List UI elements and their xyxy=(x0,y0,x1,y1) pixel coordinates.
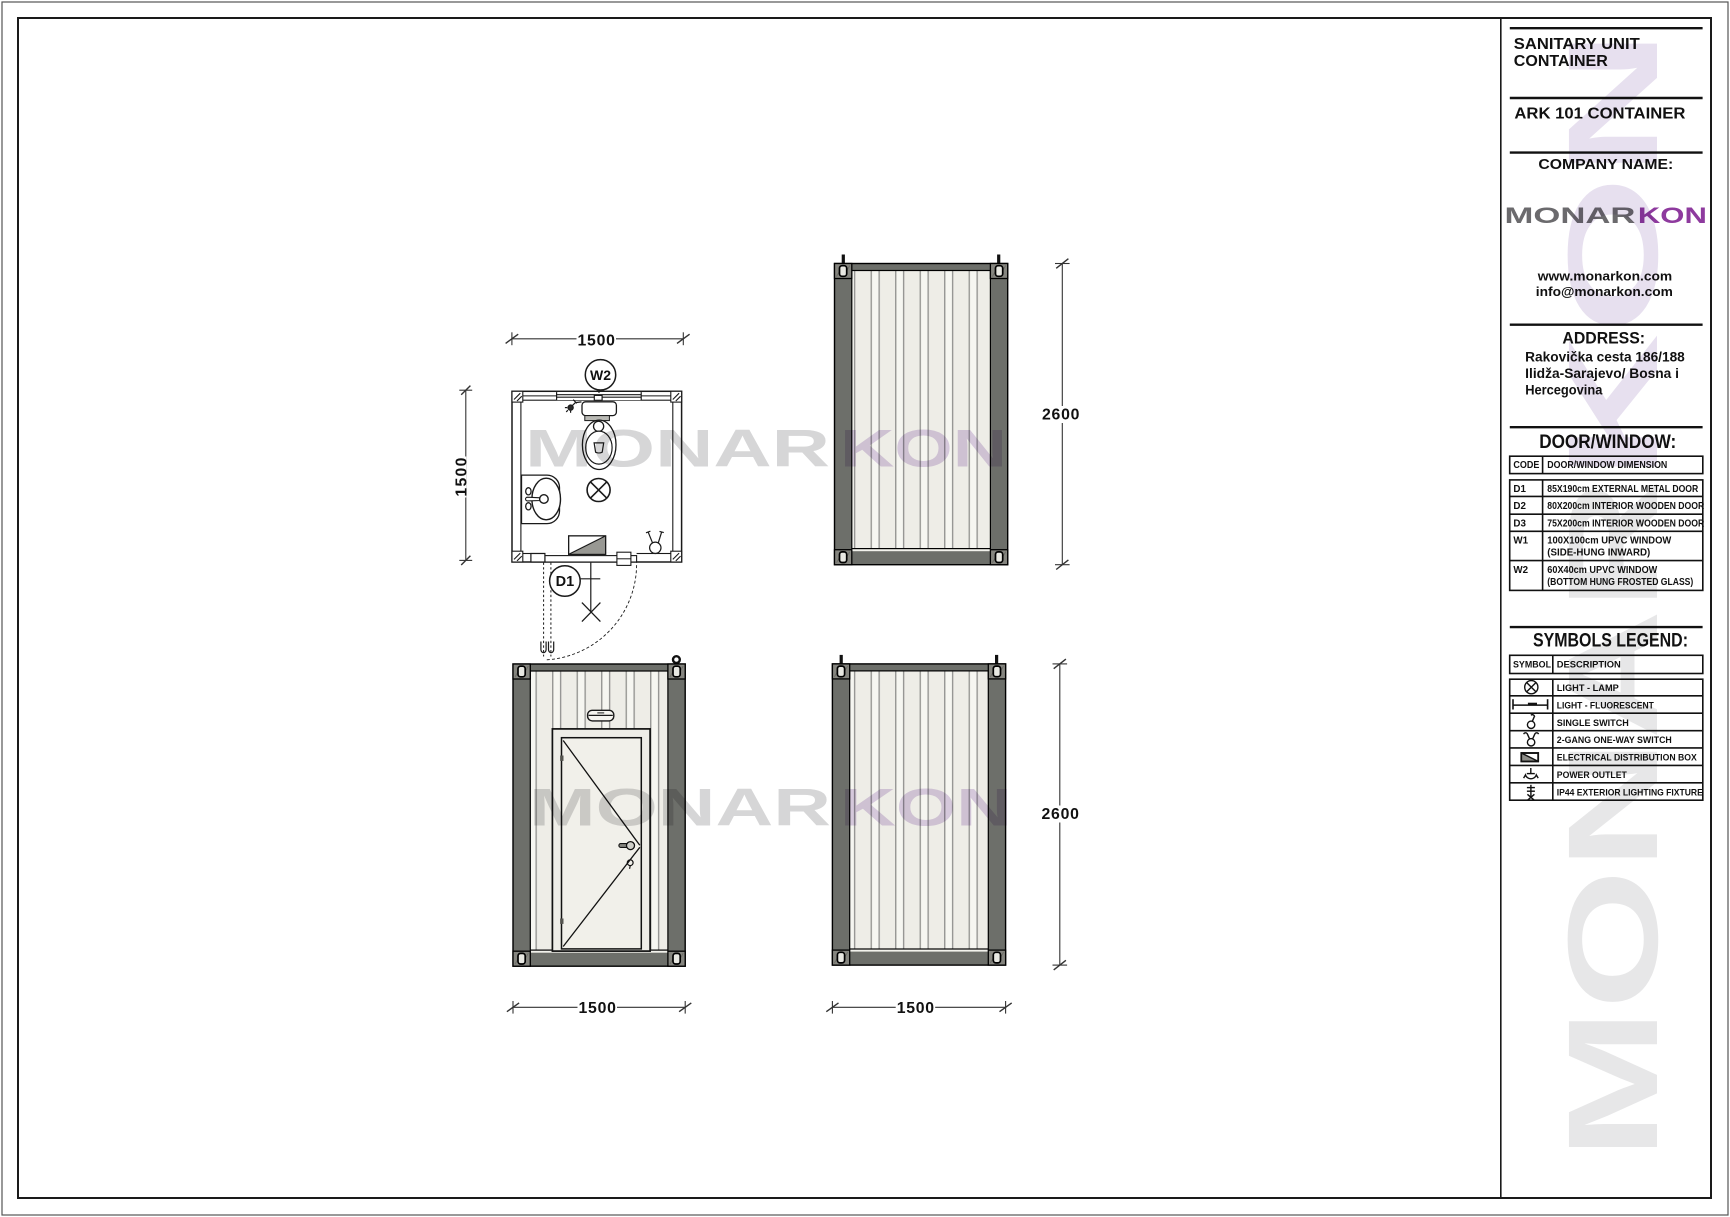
svg-text:KON: KON xyxy=(840,420,1007,479)
svg-text:1500: 1500 xyxy=(897,1000,935,1017)
svg-text:MONAR: MONAR xyxy=(1542,480,1685,1159)
svg-text:1500: 1500 xyxy=(579,1000,617,1017)
svg-text:D3: D3 xyxy=(1513,518,1526,529)
svg-text:W2: W2 xyxy=(590,367,611,383)
svg-text:1500: 1500 xyxy=(578,332,616,349)
svg-text:W2: W2 xyxy=(1513,565,1528,576)
svg-text:W1: W1 xyxy=(1513,535,1528,546)
svg-text:CODE: CODE xyxy=(1513,460,1539,471)
svg-text:KON: KON xyxy=(840,779,1012,838)
svg-text:2600: 2600 xyxy=(1042,407,1080,424)
svg-text:D1: D1 xyxy=(556,574,575,590)
svg-text:MONAR: MONAR xyxy=(529,779,831,838)
svg-text:D1: D1 xyxy=(1513,484,1526,495)
svg-text:MONAR: MONAR xyxy=(525,420,830,479)
svg-text:1500: 1500 xyxy=(453,457,470,496)
svg-text:2600: 2600 xyxy=(1042,806,1080,823)
svg-text:KON: KON xyxy=(1542,30,1685,480)
svg-text:D2: D2 xyxy=(1513,501,1526,512)
